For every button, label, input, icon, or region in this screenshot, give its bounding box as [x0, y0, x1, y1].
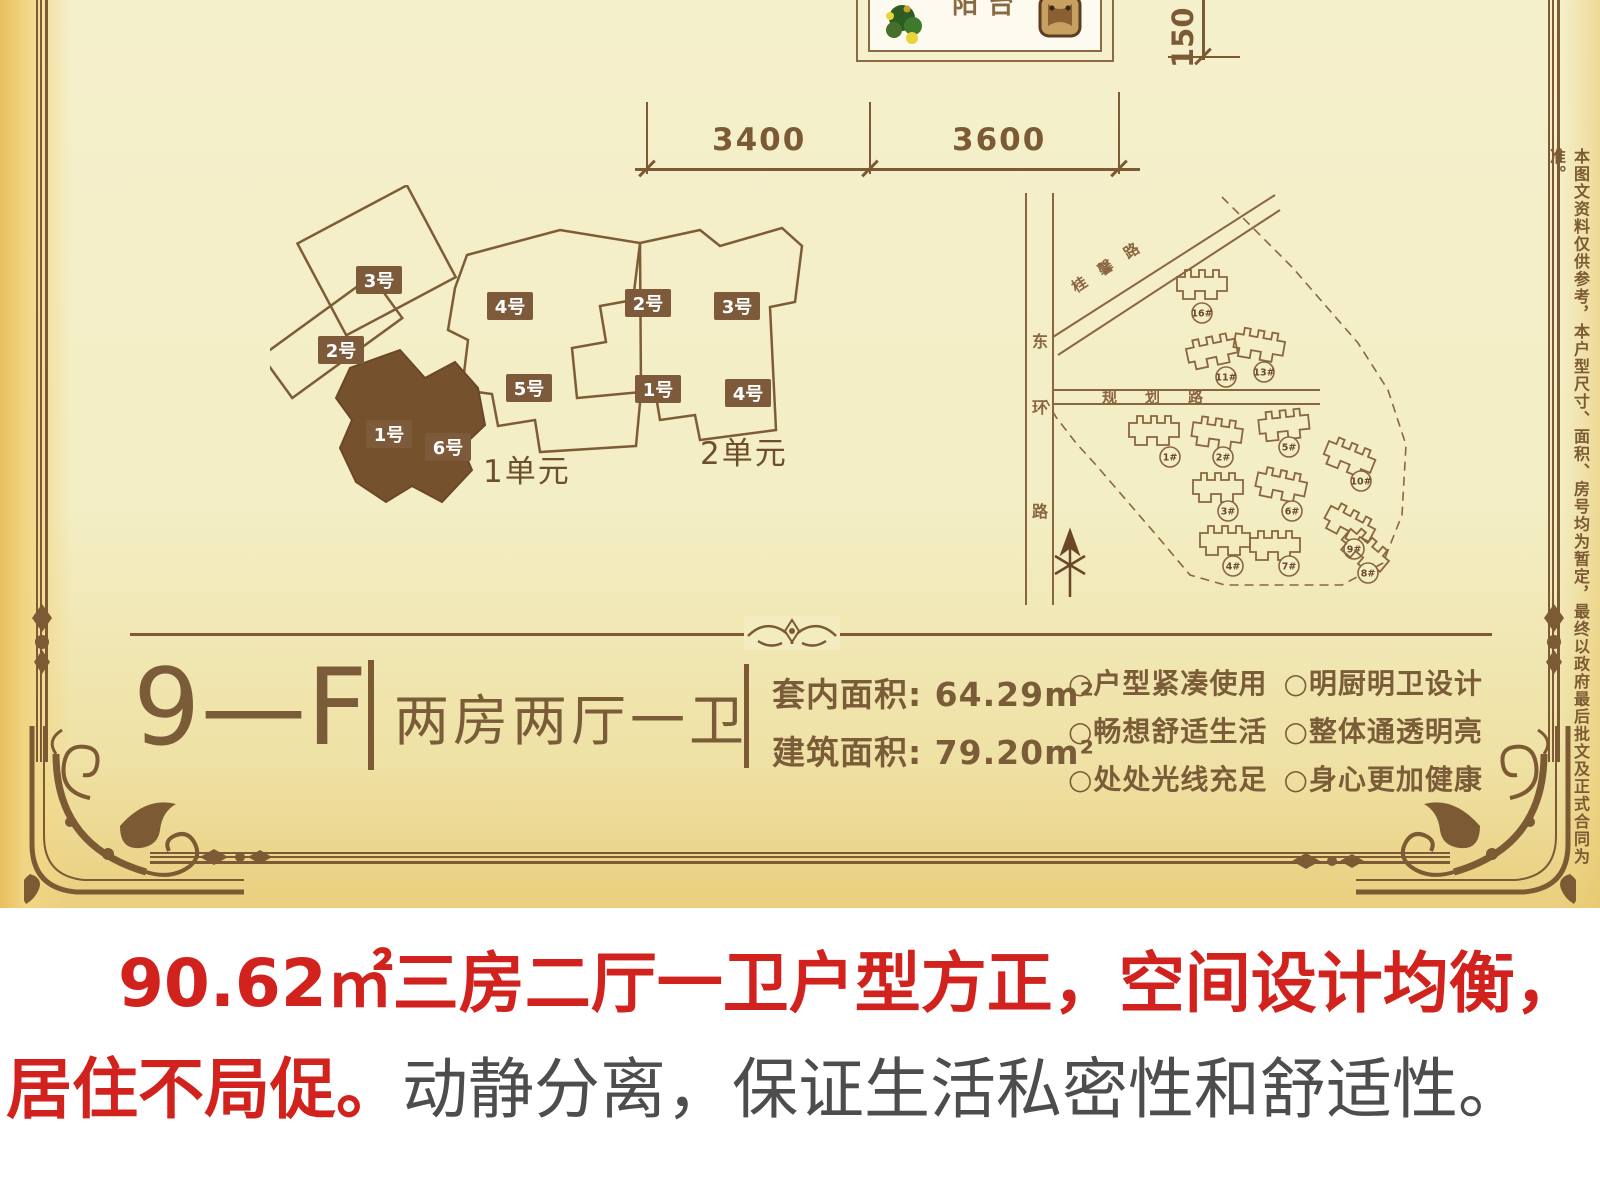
site-building-number: 6#: [1285, 507, 1300, 518]
road-label-vertical: 路: [1032, 502, 1049, 521]
armchair-icon: [1036, 0, 1086, 40]
poster: 本图文资料仅供参考，本户型尺寸、面积、房号均为暂定，最终以政府最后批文及正式合同…: [0, 0, 1600, 908]
area-row: 套内面积: 64.29m²: [772, 668, 1095, 716]
site-building-number: 2#: [1216, 453, 1231, 464]
site-building-footprint: [1250, 531, 1300, 560]
unit-chip: 4号: [725, 379, 771, 407]
compass-icon: [1055, 531, 1085, 597]
feature-item: ○户型紧凑使用: [1068, 662, 1267, 702]
dim-ext-line-3: [1118, 92, 1120, 174]
site-building-footprint: [1129, 416, 1179, 445]
site-building-footprint: [1190, 415, 1244, 451]
feature-item: ○处处光线充足: [1068, 758, 1267, 798]
siteplan-map: 东环路桂馨路规划路16#11#13#1#2#5#10#3#6#9#4#7#8#: [990, 185, 1410, 610]
dim-line-horizontal: [635, 168, 1140, 171]
feature-item: ○畅想舒适生活: [1068, 710, 1267, 750]
unit-chip: 2号: [318, 336, 364, 364]
site-building-footprint: [1193, 473, 1243, 502]
flyer-page: 本图文资料仅供参考，本户型尺寸、面积、房号均为暂定，最终以政府最后批文及正式合同…: [0, 0, 1600, 1200]
caption-line2-gray: 动静分离，保证生活私密性和舒适性。: [402, 1051, 1524, 1128]
unit1-label: 1单元: [483, 446, 571, 491]
plant-icon: [882, 0, 928, 46]
site-building-footprint: [1258, 408, 1311, 442]
divider-bar-1: [368, 660, 374, 770]
site-building-footprint: [1177, 270, 1227, 299]
unit-chip: 1号: [635, 375, 681, 403]
dim-ext-line-2: [869, 102, 871, 174]
border-finial-left: [28, 604, 56, 674]
site-building-number: 10#: [1350, 477, 1371, 488]
site-building-number: 1#: [1163, 453, 1178, 464]
caption-line1: 90.62㎡三房二厅一卫户型方正，空间设计均衡，: [0, 944, 1600, 1023]
balcony-label: 阳台: [952, 0, 1024, 21]
caption-line2-red: 居住不局促。: [6, 1051, 402, 1128]
balcony-room: 阳台: [868, 0, 1102, 52]
site-building-number: 3#: [1221, 507, 1236, 518]
unit-code: 9—F: [133, 646, 367, 769]
divider-bar-2: [744, 664, 749, 768]
border-finial-bottom-left: [200, 846, 272, 868]
area-row: 建筑面积: 79.20m²: [772, 726, 1095, 774]
dim-label-3600: 3600: [952, 122, 1046, 158]
unit-chip: 2号: [625, 289, 671, 317]
area-list: 套内面积: 64.29m²建筑面积: 79.20m²: [772, 668, 1095, 774]
road-label-vertical: 环: [1032, 398, 1048, 417]
site-building-footprint: [1232, 326, 1286, 363]
site-building-footprint: [1321, 435, 1378, 481]
unit-type: 两房两厅一卫: [394, 676, 748, 756]
site-building-number: 16#: [1191, 309, 1212, 320]
unit-chip: 3号: [714, 292, 760, 320]
unit-chip: 5号: [506, 374, 552, 402]
unit-chip: 3号: [356, 266, 402, 294]
unit-chip: 6号: [425, 433, 471, 461]
feature-item: ○身心更加健康: [1283, 758, 1482, 798]
road-label-diagonal: 桂馨路: [1068, 231, 1157, 297]
frame-bottom-line: [150, 852, 1450, 864]
feature-item: ○明厨明卫设计: [1283, 662, 1482, 702]
dim-ext-line-1: [646, 102, 648, 174]
disclaimer-text: 本图文资料仅供参考，本户型尺寸、面积、房号均为暂定，最终以政府最后批文及正式合同…: [1566, 148, 1592, 900]
border-finial-right: [1540, 604, 1568, 674]
unit-chip: 4号: [487, 292, 533, 320]
site-building-footprint: [1200, 526, 1250, 555]
unit2-label: 2单元: [700, 428, 788, 473]
site-building-footprint: [1254, 466, 1309, 505]
feature-item: ○整体通透明亮: [1283, 710, 1482, 750]
unit-chip: 1号: [366, 420, 412, 448]
site-building-number: 8#: [1361, 569, 1376, 580]
road-label-vertical: 东: [1032, 332, 1048, 351]
site-building-number: 11#: [1215, 373, 1236, 384]
road-label-horizontal: 规划路: [1102, 388, 1231, 406]
site-building-footprint: [1184, 332, 1239, 371]
site-building-number: 5#: [1282, 443, 1297, 454]
divider-ornament: [744, 616, 840, 650]
dim-label-150: 150: [1166, 0, 1200, 68]
caption-line2: 居住不局促。动静分离，保证生活私密性和舒适性。: [6, 1050, 1600, 1129]
site-building-number: 13#: [1253, 368, 1274, 379]
site-building-number: 7#: [1282, 562, 1297, 573]
caption-band: 90.62㎡三房二厅一卫户型方正，空间设计均衡， 居住不局促。动静分离，保证生活…: [0, 908, 1600, 1200]
feature-list: ○户型紧凑使用○明厨明卫设计○畅想舒适生活○整体通透明亮○处处光线充足○身心更加…: [1068, 662, 1483, 798]
border-finial-bottom-right: [1292, 850, 1364, 872]
dim-label-3400: 3400: [712, 122, 806, 158]
site-building-number: 4#: [1226, 562, 1241, 573]
